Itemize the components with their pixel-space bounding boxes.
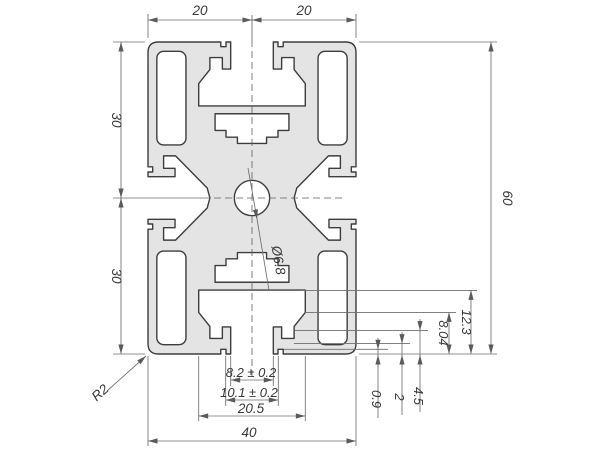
profile-drawing: 20 20 30 30 60 12.3 8.04 4.5 2 0.9 8.2 ±… [0, 0, 600, 450]
dim-label-stack-outer: 12.3 [459, 309, 474, 335]
corner-cavity-bottom-left [157, 251, 186, 345]
dim-label-slot-opening: 8.2 ± 0.2 [226, 365, 277, 380]
dim-label-height: 60 [500, 190, 515, 206]
dim-label-slot-undercut: 10.1 ± 0.2 [220, 385, 279, 400]
dim-label-lip-a: 4.5 [411, 387, 426, 406]
corner-cavity-top-right [318, 51, 347, 145]
dim-label-top-left: 20 [191, 3, 208, 18]
dim-label-lip-b: 2 [392, 392, 407, 401]
corner-cavity-top-left [157, 51, 186, 145]
dim-height [359, 42, 497, 354]
dim-label-left-upper: 30 [109, 112, 124, 128]
technical-drawing-canvas: 20 20 30 30 60 12.3 8.04 4.5 2 0.9 8.2 ±… [0, 0, 600, 450]
leader-corner-radius [107, 356, 146, 391]
dim-label-top-right: 20 [295, 3, 312, 18]
dim-label-slot-chamber: 20.5 [237, 401, 265, 416]
dim-label-left-lower: 30 [109, 268, 124, 284]
dim-label-lip-c: 0.9 [369, 390, 384, 408]
fillet-radius-label: R2 [89, 381, 112, 404]
dim-label-stack-inner: 8.04 [436, 320, 451, 345]
dim-label-width: 40 [241, 425, 257, 440]
